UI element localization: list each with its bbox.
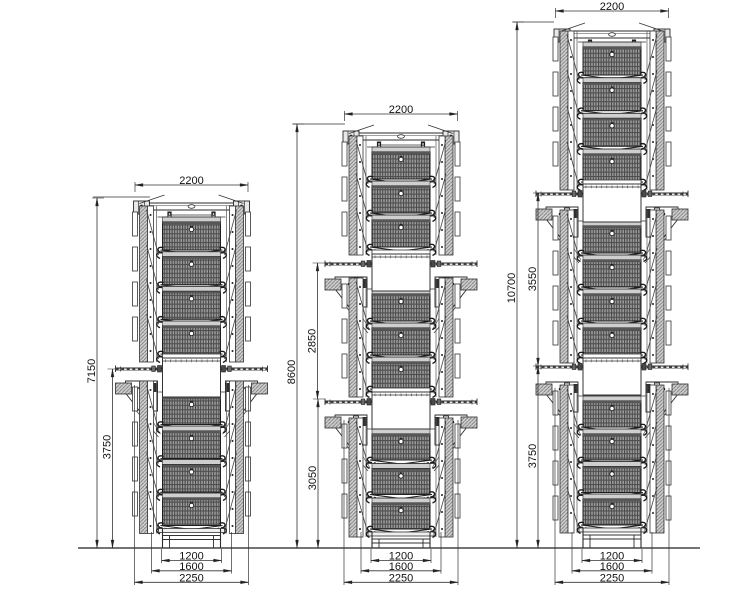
svg-text:10700: 10700 (506, 273, 518, 304)
svg-text:1600: 1600 (389, 561, 413, 573)
svg-text:3750: 3750 (102, 435, 114, 459)
svg-text:2200: 2200 (389, 104, 413, 116)
svg-text:3050: 3050 (307, 466, 319, 490)
svg-text:2850: 2850 (307, 329, 319, 353)
svg-text:7150: 7150 (86, 359, 98, 383)
svg-text:2250: 2250 (600, 572, 624, 584)
svg-text:8600: 8600 (286, 360, 298, 384)
svg-text:3750: 3750 (527, 444, 539, 468)
svg-text:2250: 2250 (389, 572, 413, 584)
svg-text:2250: 2250 (179, 572, 203, 584)
svg-text:2200: 2200 (600, 1, 624, 13)
svg-text:1600: 1600 (600, 561, 624, 573)
svg-text:2200: 2200 (179, 175, 203, 187)
svg-text:1600: 1600 (179, 561, 203, 573)
svg-text:3550: 3550 (527, 267, 539, 291)
